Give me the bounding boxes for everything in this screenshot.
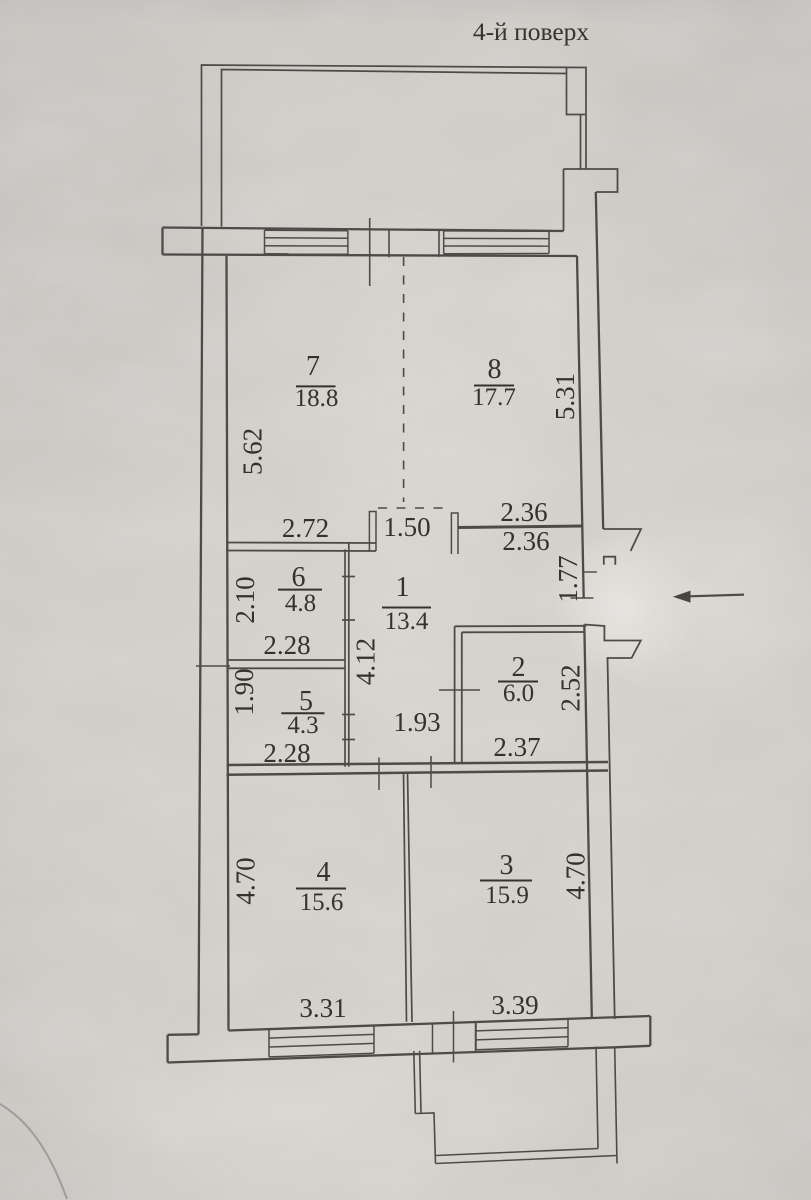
svg-text:1: 1 xyxy=(396,572,410,603)
svg-text:5.31: 5.31 xyxy=(550,373,580,420)
svg-text:3: 3 xyxy=(500,850,514,881)
svg-text:3.31: 3.31 xyxy=(299,993,346,1023)
svg-text:4.70: 4.70 xyxy=(231,857,261,904)
svg-text:13.4: 13.4 xyxy=(385,608,429,635)
svg-text:4-й поверх: 4-й поверх xyxy=(473,17,590,46)
svg-text:4.70: 4.70 xyxy=(561,852,591,899)
svg-text:2.36: 2.36 xyxy=(502,526,549,556)
svg-text:7: 7 xyxy=(306,351,320,382)
svg-text:2.72: 2.72 xyxy=(282,513,329,543)
svg-text:2.28: 2.28 xyxy=(263,630,310,660)
svg-text:8: 8 xyxy=(488,354,502,385)
svg-text:17.7: 17.7 xyxy=(472,384,516,411)
svg-text:15.6: 15.6 xyxy=(300,889,344,916)
svg-text:2.28: 2.28 xyxy=(263,738,310,768)
svg-text:5.62: 5.62 xyxy=(238,428,268,475)
svg-text:4.8: 4.8 xyxy=(285,590,316,617)
svg-text:4.12: 4.12 xyxy=(351,638,381,685)
svg-text:1.93: 1.93 xyxy=(393,707,440,737)
svg-text:2.52: 2.52 xyxy=(556,664,586,711)
svg-text:1.50: 1.50 xyxy=(383,512,430,542)
svg-text:15.9: 15.9 xyxy=(485,882,529,909)
svg-text:6.0: 6.0 xyxy=(503,680,534,707)
svg-text:3.39: 3.39 xyxy=(491,990,538,1020)
svg-text:4.3: 4.3 xyxy=(287,712,318,739)
svg-text:2: 2 xyxy=(512,652,526,683)
svg-text:2.36: 2.36 xyxy=(500,497,547,527)
svg-text:1.77: 1.77 xyxy=(553,555,583,602)
svg-text:18.8: 18.8 xyxy=(295,385,339,412)
svg-text:2.10: 2.10 xyxy=(230,576,260,623)
svg-text:6: 6 xyxy=(292,562,306,593)
svg-text:2.37: 2.37 xyxy=(493,732,540,762)
svg-text:4: 4 xyxy=(317,857,331,888)
svg-text:1.90: 1.90 xyxy=(229,668,259,715)
